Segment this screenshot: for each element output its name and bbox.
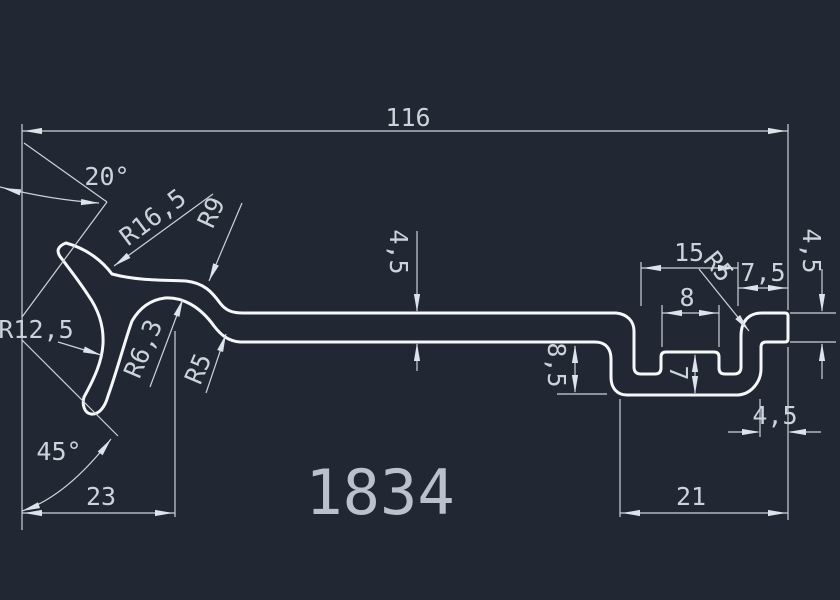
dim-text-7: 7 bbox=[664, 365, 693, 380]
dim-overall-width: 116 bbox=[22, 103, 788, 134]
dim-tongue-width: 8 bbox=[662, 283, 719, 316]
radius-text-r165: R16,5 bbox=[114, 183, 192, 251]
radius-text-r63: R6,3 bbox=[118, 315, 168, 382]
radius-leaders: R16,5 R9 R12,5 R6,3 R5 R5 bbox=[0, 183, 751, 393]
arrowhead bbox=[622, 510, 640, 516]
arrowhead bbox=[81, 199, 99, 206]
arrowhead bbox=[699, 310, 717, 316]
dim-text-85: 8,5 bbox=[542, 342, 571, 387]
dim-text-45-bottom: 4,5 bbox=[752, 401, 797, 430]
arrowhead bbox=[112, 253, 130, 269]
arrowhead bbox=[155, 510, 173, 516]
dim-text-21: 21 bbox=[676, 482, 706, 511]
arrowhead bbox=[414, 294, 420, 312]
arrowhead bbox=[206, 263, 219, 282]
dim-text-116: 116 bbox=[385, 103, 430, 132]
dim-text-23: 23 bbox=[86, 482, 116, 511]
arrowhead bbox=[819, 343, 825, 361]
arrowhead bbox=[768, 510, 786, 516]
drawing-title: 1834 bbox=[305, 456, 454, 529]
dim-channel-width: 21 bbox=[620, 482, 788, 516]
dim-angle-20: 20° bbox=[0, 143, 130, 317]
arrowhead bbox=[572, 345, 578, 363]
angle-leg bbox=[22, 202, 107, 317]
radius-text-r9: R9 bbox=[192, 193, 231, 233]
arrowhead bbox=[414, 343, 420, 361]
arrowhead bbox=[643, 265, 661, 271]
cad-drawing-area: 116 20° 45° 23 21 4,5 bbox=[0, 0, 840, 600]
dim-foot-width: 23 bbox=[22, 482, 175, 516]
dim-text-20deg: 20° bbox=[84, 162, 129, 191]
dim-text-45deg: 45° bbox=[36, 437, 81, 466]
arrowhead bbox=[819, 294, 825, 312]
dim-plate-thickness: 4,5 bbox=[384, 229, 420, 371]
dim-step-depth: 8,5 bbox=[542, 342, 578, 393]
arrowhead bbox=[24, 128, 42, 134]
arrowhead bbox=[98, 437, 114, 455]
dim-text-45-mid: 4,5 bbox=[384, 229, 413, 274]
arrowhead bbox=[572, 375, 578, 393]
arrowhead bbox=[2, 185, 21, 195]
arrowhead bbox=[83, 346, 102, 357]
arrowhead bbox=[24, 510, 42, 516]
radius-text-r5-right: R5 bbox=[698, 246, 739, 288]
dim-lip-width: 7,5 bbox=[738, 258, 788, 291]
profile-outline bbox=[58, 243, 788, 414]
dim-tongue-height: 7 bbox=[664, 354, 698, 394]
dim-right-edge-thickness: 4,5 bbox=[797, 228, 826, 379]
angle-leg bbox=[22, 340, 118, 436]
arrowhead bbox=[768, 128, 786, 134]
dim-text-75: 7,5 bbox=[740, 258, 785, 287]
radius-text-r125: R12,5 bbox=[0, 315, 74, 344]
radius-text-r5-left: R5 bbox=[179, 349, 217, 388]
dim-text-45-right: 4,5 bbox=[797, 228, 826, 273]
cad-viewport[interactable]: 116 20° 45° 23 21 4,5 bbox=[0, 0, 840, 600]
dim-text-8: 8 bbox=[679, 283, 694, 312]
dim-lip-offset: 4,5 bbox=[728, 401, 821, 435]
